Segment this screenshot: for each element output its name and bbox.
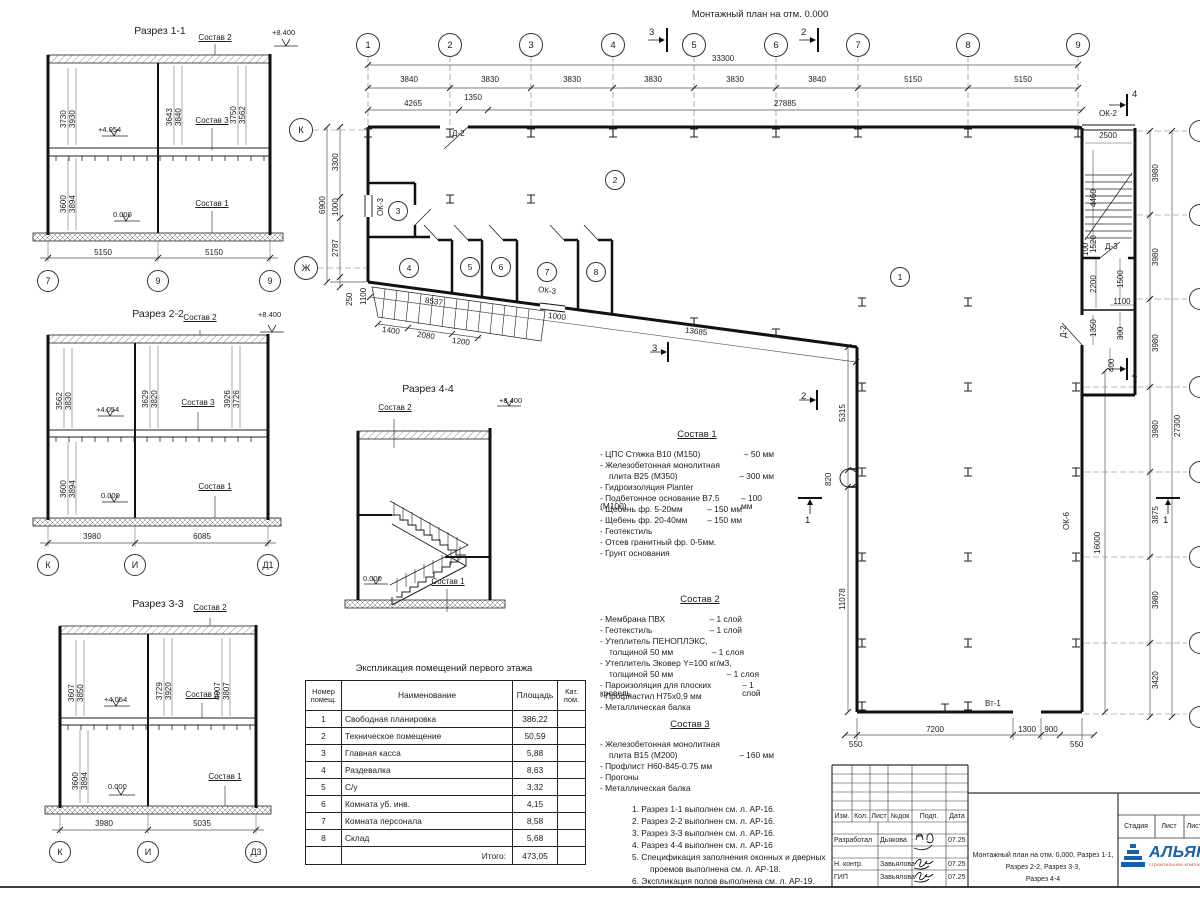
- dim-label: 3600: [72, 772, 80, 790]
- room-tag: 2: [605, 170, 625, 190]
- dim-label: 3629: [142, 390, 150, 408]
- section-mark-2: 2: [801, 28, 806, 38]
- logo-subtext: строительная компания: [1149, 863, 1200, 868]
- dim-label: 400: [1108, 359, 1116, 372]
- sostav2-line: - Утеплитель Эковер Y=100 кг/м3,: [600, 659, 774, 667]
- dim-label: 3930: [69, 110, 77, 128]
- window-tag: ОК-3: [377, 198, 385, 216]
- note-line: 6. Экспликация полов выполнена см. л. АР…: [632, 877, 815, 885]
- section-2-2-linework: [33, 325, 284, 547]
- sostav3-title: Состав 3: [670, 720, 709, 730]
- sostav2-line: - Профнастил Н75х0,9 мм: [600, 692, 774, 700]
- dim-label: 2200: [1090, 275, 1098, 293]
- titleblock-role: Н. контр.: [834, 861, 863, 868]
- axis-bubble: 9: [147, 270, 169, 292]
- elevation-label: +4.054: [104, 696, 127, 704]
- dim-label: 3980: [1152, 164, 1160, 182]
- dim-label: 3980: [1152, 591, 1160, 609]
- titleblock-name: Завьялова: [880, 874, 915, 881]
- table-row: 2Техническое помещение50,59: [306, 728, 586, 745]
- dim-label: 3840: [400, 76, 418, 84]
- room-tag: 5: [460, 257, 480, 277]
- sostav3-line: - Железобетонная монолитная: [600, 740, 774, 748]
- sostav3-line: плита В15 (М200)– 160 мм: [600, 751, 774, 759]
- door-tag: Д-3: [1105, 243, 1118, 251]
- sostav1-line: - Железобетонная монолитная: [600, 461, 774, 469]
- axis-bubble: Д1: [257, 554, 279, 576]
- dim-label: 3894: [69, 195, 77, 213]
- dim-label: 3840: [175, 108, 183, 126]
- room-tag: 8: [586, 262, 606, 282]
- axis-bubble: 9: [1066, 33, 1090, 57]
- table-row: 6Комната уб. инв.4,15: [306, 796, 586, 813]
- room-tag: 1: [890, 267, 910, 287]
- axis-bubble: К: [37, 554, 59, 576]
- titleblock-col-header: Изм.: [835, 813, 850, 820]
- dim-label: 5150: [94, 249, 112, 257]
- dim-label: 11078: [839, 588, 847, 610]
- axis-bubble: И: [137, 841, 159, 863]
- axis-bubble: 7: [846, 33, 870, 57]
- elevation-label: +8.400: [499, 397, 522, 405]
- titleblock-stage-header: Лист: [1161, 823, 1176, 830]
- window-tag: ОК-2: [1099, 110, 1117, 118]
- dim-label: 3820: [151, 390, 159, 408]
- dim-label: 1000: [332, 198, 340, 216]
- dim-label: 3875: [1152, 506, 1160, 524]
- titleblock-col-header: Дата: [949, 813, 965, 820]
- dim-label: 3894: [81, 772, 89, 790]
- table-row: 8Склад5,68: [306, 830, 586, 847]
- dim-label: 3643: [166, 108, 174, 126]
- elevation-label: +4.054: [96, 406, 119, 414]
- dim-label: 3730: [60, 110, 68, 128]
- sostav2-line: - Металлическая балка: [600, 703, 774, 711]
- note-line: 5. Спецификация заполнения оконных и две…: [632, 853, 826, 861]
- dim-label: 3850: [77, 684, 85, 702]
- sostav1-line: - Щебень фр. 5-20мм– 150 мм: [600, 505, 742, 513]
- dim-label: 1350: [1090, 319, 1098, 337]
- section-2-2-title: Разрез 2-2: [132, 309, 184, 320]
- dim-label: 3920: [165, 682, 173, 700]
- dim-label: 3807: [223, 682, 231, 700]
- sostav1-leader-label: Состав 1: [431, 578, 464, 586]
- section-mark-1: 1: [1163, 516, 1168, 526]
- logo-triangle-icon: [1121, 842, 1145, 870]
- titleblock-name: Дьякова: [880, 837, 907, 844]
- sostav1-line: плита В25 (М350)– 300 мм: [600, 472, 774, 480]
- dim-label: 3420: [1152, 671, 1160, 689]
- axis-bubble: 7: [37, 270, 59, 292]
- titleblock-col-header: Лист: [871, 813, 886, 820]
- elevation-label: +4.054: [98, 126, 121, 134]
- dim-label: 2500: [1099, 132, 1117, 140]
- dim-label: 1520: [1090, 235, 1098, 253]
- axis-bubble: К: [49, 841, 71, 863]
- dim-label: 550: [849, 741, 862, 749]
- elevation-label: +8.400: [258, 311, 281, 319]
- col-header: Наименование: [342, 681, 513, 711]
- sostav2-line: - Утеплитель ПЕНОПЛЭКС,: [600, 637, 774, 645]
- dim-label: 3562: [56, 392, 64, 410]
- dim-label: 1300: [1018, 726, 1036, 734]
- explication-table: Номерпомещ. Наименование Площадь Кат.пом…: [305, 680, 586, 865]
- axis-bubble: К: [289, 118, 313, 142]
- dim-label: 3600: [60, 195, 68, 213]
- axis-bubble: 6: [764, 33, 788, 57]
- room-tag: 3: [388, 201, 408, 221]
- sostav3-line: - Металлическая балка: [600, 784, 774, 792]
- section-3-3-linework: [45, 618, 271, 834]
- dim-label: 3980: [83, 533, 101, 541]
- section-mark-3: 3: [652, 344, 657, 354]
- axis-bubble: Ж: [294, 256, 318, 280]
- room-tag: 4: [399, 258, 419, 278]
- sostav1-title: Состав 1: [677, 430, 716, 440]
- dim-label: 1100: [360, 288, 368, 305]
- sostav3-leader-label: Состав 3: [181, 399, 214, 407]
- dim-label: 5150: [904, 76, 922, 84]
- elevation-label: 0.000: [113, 211, 132, 219]
- axis-bubble: 9: [259, 270, 281, 292]
- axis-bubble: 1: [356, 33, 380, 57]
- sostav1-line: - Щебень фр. 20-40мм– 150 мм: [600, 516, 742, 524]
- sostav1-line: - Гидроизоляция Planter: [600, 483, 774, 491]
- dim-label: 550: [1070, 741, 1083, 749]
- section-4-4-title: Разрез 4-4: [402, 384, 454, 395]
- titleblock-date: 07.25: [948, 837, 966, 844]
- section-1-1-title: Разрез 1-1: [134, 26, 186, 37]
- dim-label: 3729: [156, 682, 164, 700]
- door-tag: Д-2: [1060, 325, 1068, 338]
- titleblock-role: ГИП: [834, 874, 848, 881]
- note-line: 4. Разрез 4-4 выполнен см. л. АР-16: [632, 841, 773, 849]
- dim-label: 3830: [65, 392, 73, 410]
- dim-label: 3894: [69, 480, 77, 498]
- col-header: Номерпомещ.: [306, 681, 342, 711]
- titleblock-date: 07.25: [948, 874, 966, 881]
- dim-label: 6085: [193, 533, 211, 541]
- sostav2-line: толщиной 50 мм– 1 слоя: [600, 648, 744, 656]
- col-header: Кат.пом.: [558, 681, 586, 711]
- dim-label: 7200: [926, 726, 944, 734]
- sostav1-leader-label: Состав 1: [198, 483, 231, 491]
- titleblock-col-header: №док: [891, 813, 910, 820]
- dim-label: 3830: [563, 76, 581, 84]
- axis-bubble: Д3: [245, 841, 267, 863]
- dim-label: 6900: [319, 196, 327, 214]
- table-row: 4Раздевалка8,63: [306, 762, 586, 779]
- dim-label: 3980: [1152, 420, 1160, 438]
- note-line: 2. Разрез 2-2 выполнен см. л. АР-16.: [632, 817, 775, 825]
- dim-label: 3830: [481, 76, 499, 84]
- sostav3-line: - Прогоны: [600, 773, 774, 781]
- titleblock-name: Завьялова: [880, 861, 915, 868]
- sostav3-leader-label: Состав 3: [195, 117, 228, 125]
- section-mark-2: 2: [801, 392, 806, 402]
- signature-ncontrol: [914, 859, 933, 869]
- titleblock-stage-header: Листов: [1187, 823, 1200, 830]
- dim-label: 3830: [726, 76, 744, 84]
- axis-bubble: И: [124, 554, 146, 576]
- dim-label: 3300: [332, 153, 340, 171]
- elevation-label: 0.000: [363, 575, 382, 583]
- titleblock-role: Разработал: [834, 837, 872, 844]
- axis-bubble: 8: [956, 33, 980, 57]
- titleblock-date: 07.25: [948, 861, 966, 868]
- room-tag: 6: [491, 257, 511, 277]
- dim-label: 5315: [839, 404, 847, 422]
- dim-label: 3726: [233, 390, 241, 408]
- axis-bubble: 4: [601, 33, 625, 57]
- dim-label: 3926: [224, 390, 232, 408]
- sostav2-line: толщиной 50 мм– 1 слоя: [600, 670, 759, 678]
- dim-label: 4460: [1090, 189, 1098, 207]
- table-row: 7Комната персонала8,58: [306, 813, 586, 830]
- sostav1-line: - Геотекстиль: [600, 527, 774, 535]
- elevation-label: 0.000: [108, 783, 127, 791]
- sostav2-line: - Мембрана ПВХ– 1 слой: [600, 615, 742, 623]
- element-tag: Вт-1: [985, 700, 1001, 708]
- dim-label: 33300: [712, 55, 734, 63]
- sostav2-leader-label: Состав 2: [183, 314, 216, 322]
- dim-label: 250: [346, 293, 354, 306]
- dim-label: 27885: [774, 100, 796, 108]
- dim-label: 27300: [1174, 415, 1182, 437]
- dim-label: 5150: [1014, 76, 1032, 84]
- axis-bubble: 5: [682, 33, 706, 57]
- dim-label: 5035: [193, 820, 211, 828]
- logo-text: АЛЬЯНС: [1149, 845, 1200, 861]
- sostav3-line: - Профлист Н60-845-0.75 мм: [600, 762, 774, 770]
- sostav2-title: Состав 2: [680, 595, 719, 605]
- dim-label: 100: [1082, 243, 1090, 256]
- section-mark-3: 3: [649, 28, 654, 38]
- section-1-1-linework: [33, 39, 298, 262]
- dim-label: 1500: [1117, 270, 1125, 288]
- dim-label: 5150: [205, 249, 223, 257]
- dim-label: 1350: [464, 94, 482, 102]
- dim-label: 3562: [239, 106, 247, 124]
- section-mark-4: 4: [1132, 90, 1137, 100]
- section-3-3-title: Разрез 3-3: [132, 599, 184, 610]
- axis-bubble: 2: [438, 33, 462, 57]
- dim-label: 300: [1117, 327, 1125, 340]
- dim-label: 3980: [95, 820, 113, 828]
- section-mark-4: 4: [1132, 371, 1137, 381]
- dim-label: 3607: [68, 684, 76, 702]
- window-tag: ОК-6: [1063, 512, 1071, 530]
- dim-label: 900: [1044, 726, 1057, 734]
- signature-developer: [914, 834, 933, 850]
- note-line: проемов выполнена см. л. АР-18.: [650, 865, 781, 873]
- dim-label: 3840: [808, 76, 826, 84]
- sostav1-leader-label: Состав 1: [208, 773, 241, 781]
- sostav1-leader-label: Состав 1: [195, 200, 228, 208]
- axis-bubble: 3: [519, 33, 543, 57]
- sostav1-line: - ЦПС Стяжка В10 (М150)– 50 мм: [600, 450, 774, 458]
- sostav1-line: - Отсев гранитный фр. 0-5мм.: [600, 538, 774, 546]
- dim-label: 16000: [1094, 532, 1102, 554]
- door-tag: Д-2: [452, 130, 465, 138]
- titleblock-col-header: Подп.: [920, 813, 939, 820]
- titleblock-col-header: Кол.: [854, 813, 868, 820]
- table-row: 5С/у3,32: [306, 779, 586, 796]
- dim-label: 3980: [1152, 248, 1160, 266]
- drawing-sheet: Разрез 1-1 Состав 2 +8.400 3730 3930 364…: [0, 0, 1200, 900]
- table-row: 1Свободная планировка386,22: [306, 711, 586, 728]
- explication-title: Экспликация помещений первого этажа: [356, 664, 533, 674]
- elevation-label: 0.000: [101, 492, 120, 500]
- dim-label: 1100: [1113, 298, 1130, 306]
- dim-label: 4265: [404, 100, 422, 108]
- note-line: 1. Разрез 1-1 выполнен см. л. АР-16.: [632, 805, 775, 813]
- dim-label: 3600: [60, 480, 68, 498]
- col-header: Площадь: [513, 681, 558, 711]
- section-mark-1: 1: [805, 516, 810, 526]
- plan-title: Монтажный план на отм. 0.000: [692, 10, 829, 20]
- dim-label: 820: [825, 473, 833, 486]
- sostav3-leader-label: Состав 3: [185, 691, 218, 699]
- room-tag: 7: [537, 262, 557, 282]
- company-logo: АЛЬЯНС строительная компания: [1121, 842, 1200, 870]
- signature-gip: [914, 872, 933, 882]
- elevation-label: +8.400: [272, 29, 295, 37]
- sostav2-leader-label: Состав 2: [378, 404, 411, 412]
- table-total-row: Итого:473,05: [306, 847, 586, 865]
- titleblock-stage-header: Стадия: [1124, 823, 1148, 830]
- dim-label: 2787: [332, 239, 340, 257]
- dim-label: 3830: [644, 76, 662, 84]
- titleblock-doc-title: Разрез 4-4: [1026, 876, 1060, 883]
- sostav1-line: - Грунт основания: [600, 549, 774, 557]
- titleblock-doc-title: Разрез 2-2, Разрез 3-3,: [1006, 864, 1081, 871]
- dim-label: 3750: [230, 106, 238, 124]
- titleblock-doc-title: Монтажный план на отм. 0,000, Разрез 1-1…: [973, 852, 1114, 859]
- table-row: 3Главная касса5,88: [306, 745, 586, 762]
- sostav2-leader-label: Состав 2: [193, 604, 226, 612]
- sostav2-leader-label: Состав 2: [198, 34, 231, 42]
- sostav2-line: - Геотекстиль– 1 слой: [600, 626, 742, 634]
- dim-label: 3980: [1152, 334, 1160, 352]
- note-line: 3. Разрез 3-3 выполнен см. л. АР-16.: [632, 829, 775, 837]
